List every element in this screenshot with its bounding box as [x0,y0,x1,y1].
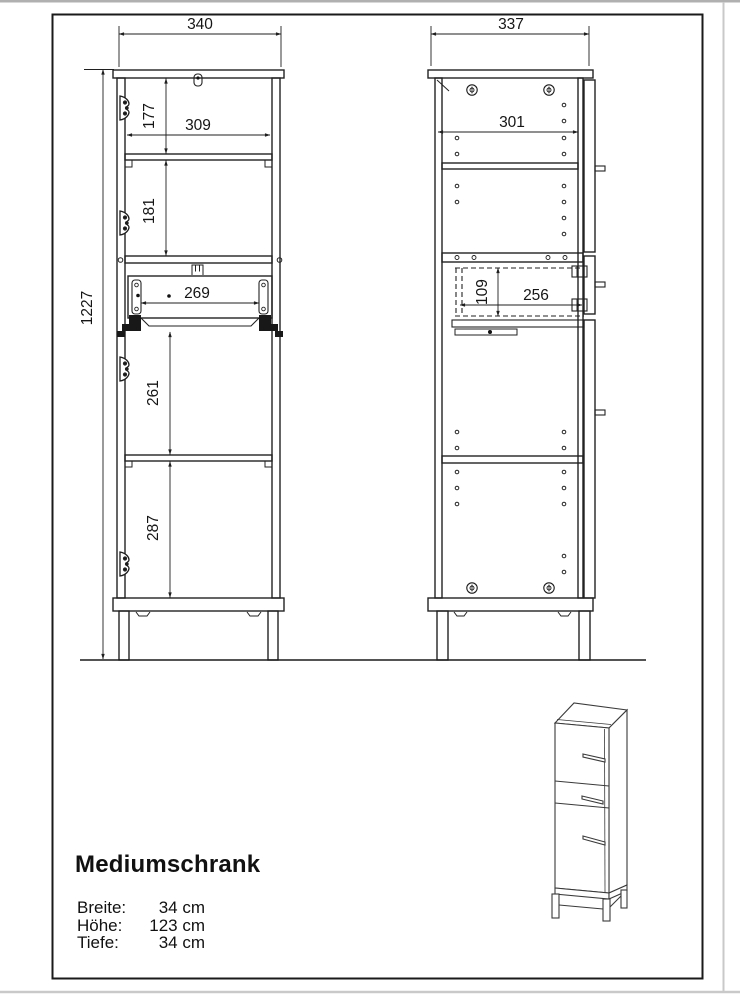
spec-row-width: Breite: 34 cm [77,899,205,917]
spec-label: Tiefe: [77,934,147,952]
knob-icon [595,282,605,287]
hinge-icon [120,552,129,576]
dim-bottom-height: 287 [145,515,162,541]
dim-drawer-height: 109 [474,279,491,305]
spec-table: Breite: 34 cm Höhe: 123 cm Tiefe: 34 cm [77,899,205,952]
page-top-edge [0,0,740,3]
screw-icon [544,85,554,95]
spec-value: 123 cm [147,917,205,935]
technical-drawing-page: 340 1227 309 177 181 269 261 287 [0,0,740,1000]
spec-row-height: Höhe: 123 cm [77,917,205,935]
spec-label: Breite: [77,899,147,917]
dim-overall-height: 1227 [79,291,96,325]
spec-row-depth: Tiefe: 34 cm [77,934,205,952]
dim-drawer-width: 269 [184,285,210,302]
drawing-canvas: 340 1227 309 177 181 269 261 287 [0,0,740,1000]
screw-icon [544,583,554,593]
dim-middle-height: 261 [145,380,162,406]
product-title: Mediumschrank [75,851,260,879]
product-title-block: Mediumschrank [75,851,260,879]
wall-mount-keyhole-icon [194,74,202,86]
dim-overall-width: 340 [187,16,213,33]
hinge-icon [120,96,129,120]
dim-overall-depth: 337 [498,16,524,33]
dim-shelf-height: 181 [141,198,158,224]
hinge-icon [120,357,129,381]
isometric-thumbnail [552,703,627,921]
spec-value: 34 cm [147,934,205,952]
dim-inner-width: 309 [185,117,211,134]
front-view-dimensions [84,26,281,659]
dim-drawer-depth: 256 [523,287,549,304]
side-elevation-view [428,70,605,660]
spec-label: Höhe: [77,917,147,935]
screw-icon [467,583,477,593]
knob-icon [595,410,605,415]
screw-icon [467,85,477,95]
shelf-pin-holes [455,103,566,574]
dim-inner-depth: 301 [499,114,525,131]
hinge-icon [120,211,129,235]
spec-value: 34 cm [147,899,205,917]
knob-icon [595,166,605,171]
front-view-dimension-labels: 340 1227 309 177 181 269 261 287 [79,16,213,541]
front-elevation-view [113,70,284,660]
dim-top-height: 177 [141,103,158,129]
